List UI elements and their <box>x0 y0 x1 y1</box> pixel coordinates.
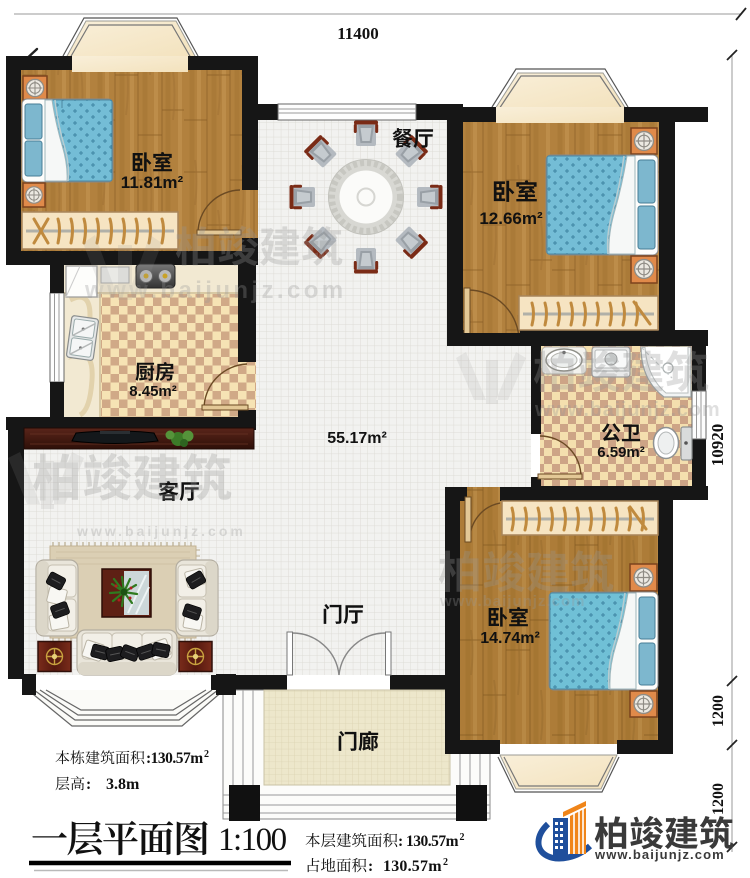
svg-text::: : <box>86 776 91 793</box>
svg-text:6.59m²: 6.59m² <box>597 444 645 461</box>
svg-text:www.baijunjz.com: www.baijunjz.com <box>534 399 720 421</box>
svg-text:2: 2 <box>443 857 448 868</box>
svg-text:11400: 11400 <box>337 24 379 43</box>
svg-text:55.17m²: 55.17m² <box>327 430 387 447</box>
svg-text:3.8m: 3.8m <box>106 776 140 793</box>
svg-text:12.66m²: 12.66m² <box>479 209 543 228</box>
svg-text:11.81m²: 11.81m² <box>121 173 184 192</box>
svg-text:www.baijunjz.com: www.baijunjz.com <box>84 277 347 304</box>
svg-text:130.57m: 130.57m <box>383 858 442 875</box>
svg-text:10920: 10920 <box>708 424 727 467</box>
svg-text:2: 2 <box>460 832 465 843</box>
svg-text:www.baijunjz.com: www.baijunjz.com <box>76 523 246 539</box>
svg-text:8.45m²: 8.45m² <box>129 383 177 400</box>
svg-text:2: 2 <box>204 749 209 760</box>
svg-text::: : <box>368 858 373 875</box>
svg-text:1200: 1200 <box>710 783 727 815</box>
svg-text:1200: 1200 <box>710 695 727 727</box>
svg-text:www.baijunjz.com: www.baijunjz.com <box>594 847 725 862</box>
svg-text:: 130.57m: : 130.57m <box>398 833 459 850</box>
svg-text:www.baijunjz.com: www.baijunjz.com <box>439 593 585 610</box>
svg-text::130.57m: :130.57m <box>146 750 203 767</box>
svg-text:14.74m²: 14.74m² <box>480 630 540 647</box>
svg-text:1:100: 1:100 <box>218 822 287 858</box>
